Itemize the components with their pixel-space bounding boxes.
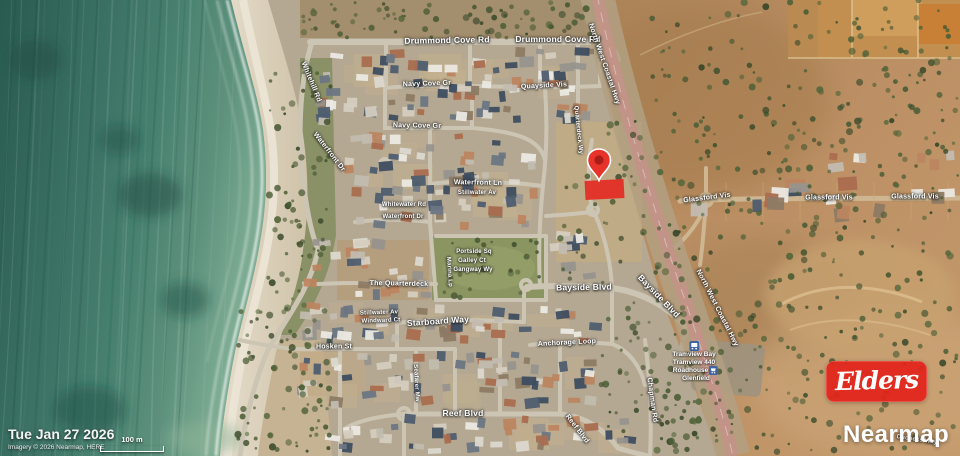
capture-date: Tue Jan 27 2026	[8, 426, 114, 442]
imagery-attribution: Imagery © 2026 Nearmap, HERE	[8, 444, 105, 451]
nearmap-watermark: Nearmap	[843, 421, 949, 449]
property-pin[interactable]	[586, 148, 612, 182]
scale-bar-line	[100, 446, 164, 452]
aerial-imagery	[0, 0, 960, 456]
elders-logo-text: Elders	[835, 365, 919, 396]
elders-logo: Elders	[826, 361, 927, 402]
scale-label: 100 m	[100, 435, 164, 444]
parcel-highlight[interactable]	[585, 179, 625, 200]
paddocks	[788, 0, 960, 58]
map-canvas[interactable]: Drummond Cove RdDrummond Cove RdNorth We…	[0, 0, 960, 456]
scale-bar: 100 m	[100, 438, 164, 452]
